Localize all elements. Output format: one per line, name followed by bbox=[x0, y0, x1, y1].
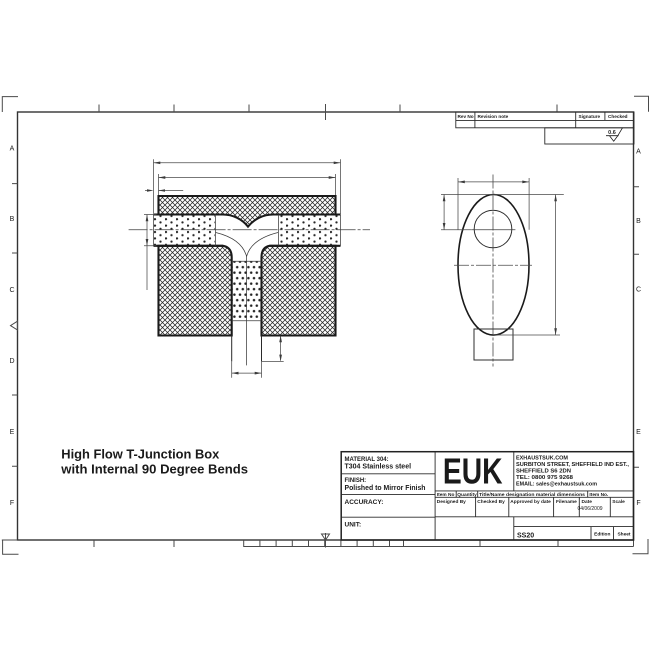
svg-text:Signature: Signature bbox=[579, 114, 601, 119]
svg-text:ACCURACY:: ACCURACY: bbox=[345, 499, 384, 506]
svg-text:E: E bbox=[10, 429, 15, 436]
svg-text:0.6: 0.6 bbox=[608, 130, 616, 136]
svg-text:C: C bbox=[9, 287, 14, 294]
svg-text:UNIT:: UNIT: bbox=[345, 522, 362, 529]
svg-text:Checked By: Checked By bbox=[477, 499, 505, 505]
svg-text:High Flow T-Junction Box: High Flow T-Junction Box bbox=[61, 446, 220, 461]
svg-text:EMAIL: sales@exhaustsuk.com: EMAIL: sales@exhaustsuk.com bbox=[516, 482, 597, 488]
svg-text:TEL: 0800 975 9268: TEL: 0800 975 9268 bbox=[516, 475, 573, 481]
svg-text:T304 Stainless steel: T304 Stainless steel bbox=[345, 464, 412, 471]
svg-text:Title/Name designation materia: Title/Name designation material dimensio… bbox=[479, 492, 585, 498]
svg-text:04/06/2009: 04/06/2009 bbox=[578, 506, 603, 512]
svg-text:Filename: Filename bbox=[556, 499, 577, 505]
svg-text:SURBITON STREET, SHEFFIELD IND: SURBITON STREET, SHEFFIELD IND EST., bbox=[516, 462, 630, 468]
svg-text:Designed By: Designed By bbox=[437, 499, 466, 505]
svg-text:Polished to Mirror Finish: Polished to Mirror Finish bbox=[345, 485, 426, 492]
svg-text:Scale: Scale bbox=[612, 499, 625, 505]
svg-text:D: D bbox=[9, 358, 14, 365]
svg-text:Revision note: Revision note bbox=[478, 114, 509, 119]
svg-text:F: F bbox=[10, 500, 14, 507]
svg-text:C: C bbox=[636, 287, 641, 294]
svg-text:Rev No: Rev No bbox=[458, 114, 474, 119]
svg-text:Quantity: Quantity bbox=[457, 492, 477, 498]
svg-text:SHEFFIELD S6 2DN: SHEFFIELD S6 2DN bbox=[516, 469, 571, 475]
svg-text:FINISH:: FINISH: bbox=[345, 478, 367, 484]
svg-text:A: A bbox=[636, 149, 641, 156]
svg-text:MATERIAL 304:: MATERIAL 304: bbox=[345, 457, 389, 463]
svg-text:Approved by date: Approved by date bbox=[510, 499, 551, 505]
svg-text:Checked: Checked bbox=[608, 114, 628, 119]
svg-text:EXHAUSTSUK.COM: EXHAUSTSUK.COM bbox=[516, 456, 568, 462]
svg-text:EUK: EUK bbox=[443, 451, 503, 491]
svg-text:Item No: Item No bbox=[437, 492, 455, 498]
svg-text:Sheet: Sheet bbox=[617, 531, 630, 537]
svg-text:Edition: Edition bbox=[594, 531, 610, 537]
svg-text:SS20: SS20 bbox=[517, 532, 534, 539]
svg-text:B: B bbox=[636, 218, 641, 225]
svg-text:E: E bbox=[636, 429, 641, 436]
svg-text:A: A bbox=[10, 146, 15, 153]
svg-text:B: B bbox=[10, 216, 15, 223]
svg-text:F: F bbox=[636, 500, 640, 507]
svg-text:Date: Date bbox=[582, 499, 593, 505]
svg-text:Item No.: Item No. bbox=[589, 492, 608, 498]
svg-text:with Internal 90 Degree Bends: with Internal 90 Degree Bends bbox=[60, 462, 248, 477]
